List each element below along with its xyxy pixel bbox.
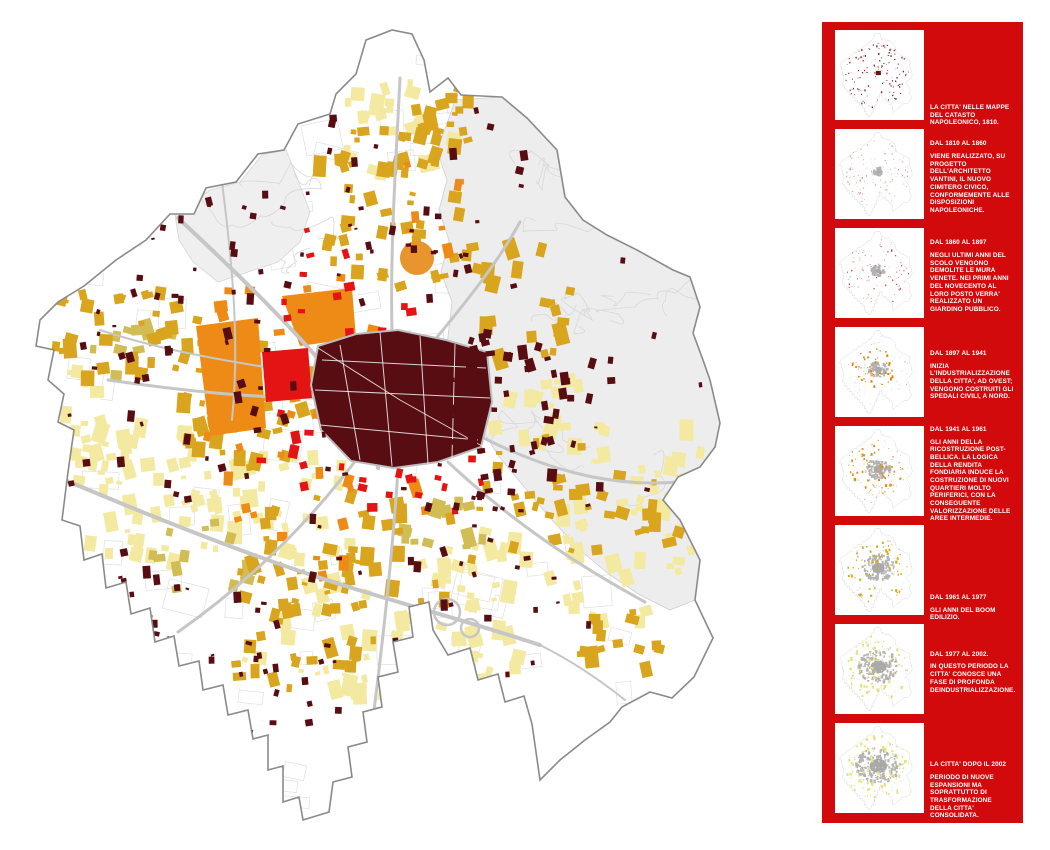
panel-body: NEGLI ULTIMI ANNI DEL SCOLO VENGONO DEMO… — [930, 252, 1015, 314]
timeline-panel-1810-1860: DAL 1810 AL 1860 VIENE REALIZZATO, SU PR… — [835, 129, 1015, 228]
panel-title: DAL 1860 AL 1897 — [930, 239, 1015, 247]
timeline-thumbnail — [835, 30, 924, 120]
timeline-panel-1941-1961: DAL 1941 AL 1961 GLI ANNI DELLA RICOSTRU… — [835, 426, 1015, 525]
timeline-thumbnail — [835, 129, 924, 219]
panel-body: IN QUESTO PERIODO LA CITTA' CONOSCE UNA … — [930, 663, 1015, 694]
thumbnail-map-svg — [835, 624, 924, 714]
thumbnail-map-svg — [835, 129, 924, 219]
timeline-thumbnail — [835, 426, 924, 516]
panel-body: VIENE REALIZZATO, SU PROGETTO DELL'ARCHI… — [930, 153, 1015, 215]
panel-body: GLI ANNI DEL BOOM EDILIZIO. — [930, 607, 1015, 622]
timeline-thumbnail — [835, 624, 924, 714]
panel-title: LA CITTA' DOPO IL 2002 — [930, 761, 1015, 769]
timeline-thumbnail — [835, 327, 924, 417]
panel-title: DAL 1961 AL 1977 — [930, 594, 1015, 602]
timeline-panel-1860-1897: DAL 1860 AL 1897 NEGLI ULTIMI ANNI DEL S… — [835, 228, 1015, 327]
timeline-panel-1810: LA CITTA' NELLE MAPPE DEL CATASTO NAPOLE… — [835, 30, 1015, 129]
thumbnail-map-svg — [835, 426, 924, 516]
panel-body: GLI ANNI DELLA RICOSTRUZIONE POST-BELLIC… — [930, 439, 1015, 524]
panel-body: PERIODO DI NUOVE ESPANSIONI MA SOPRATTUT… — [930, 774, 1015, 820]
city-map — [0, 0, 822, 850]
thumbnail-map-svg — [835, 327, 924, 417]
timeline-thumbnail — [835, 525, 924, 615]
thumbnail-map-svg — [835, 723, 924, 813]
timeline-panel-1897-1941: DAL 1897 AL 1941 INIZIA L'INDUSTRIALIZZA… — [835, 327, 1015, 426]
timeline-sidebar: LA CITTA' NELLE MAPPE DEL CATASTO NAPOLE… — [822, 22, 1023, 823]
panel-title: LA CITTA' NELLE MAPPE DEL CATASTO NAPOLE… — [930, 104, 1015, 127]
thumbnail-map-svg — [835, 30, 924, 120]
city-map-svg — [0, 0, 822, 850]
panel-title: DAL 1897 AL 1941 — [930, 350, 1015, 358]
panel-title: DAL 1977 AL 2002. — [930, 651, 1015, 659]
timeline-thumbnail — [835, 228, 924, 318]
timeline-panel-1961-1977: DAL 1961 AL 1977 GLI ANNI DEL BOOM EDILI… — [835, 525, 1015, 624]
timeline-panel-1977-2002: DAL 1977 AL 2002. IN QUESTO PERIODO LA C… — [835, 624, 1015, 723]
thumbnail-map-svg — [835, 525, 924, 615]
panel-title: DAL 1941 AL 1961 — [930, 426, 1015, 434]
panel-title: DAL 1810 AL 1860 — [930, 140, 1015, 148]
thumbnail-map-svg — [835, 228, 924, 318]
timeline-thumbnail — [835, 723, 924, 813]
timeline-panel-dopo-2002: LA CITTA' DOPO IL 2002 PERIODO DI NUOVE … — [835, 723, 1015, 822]
panel-body: INIZIA L'INDUSTRIALIZZAZIONE DELLA CITTA… — [930, 363, 1015, 401]
